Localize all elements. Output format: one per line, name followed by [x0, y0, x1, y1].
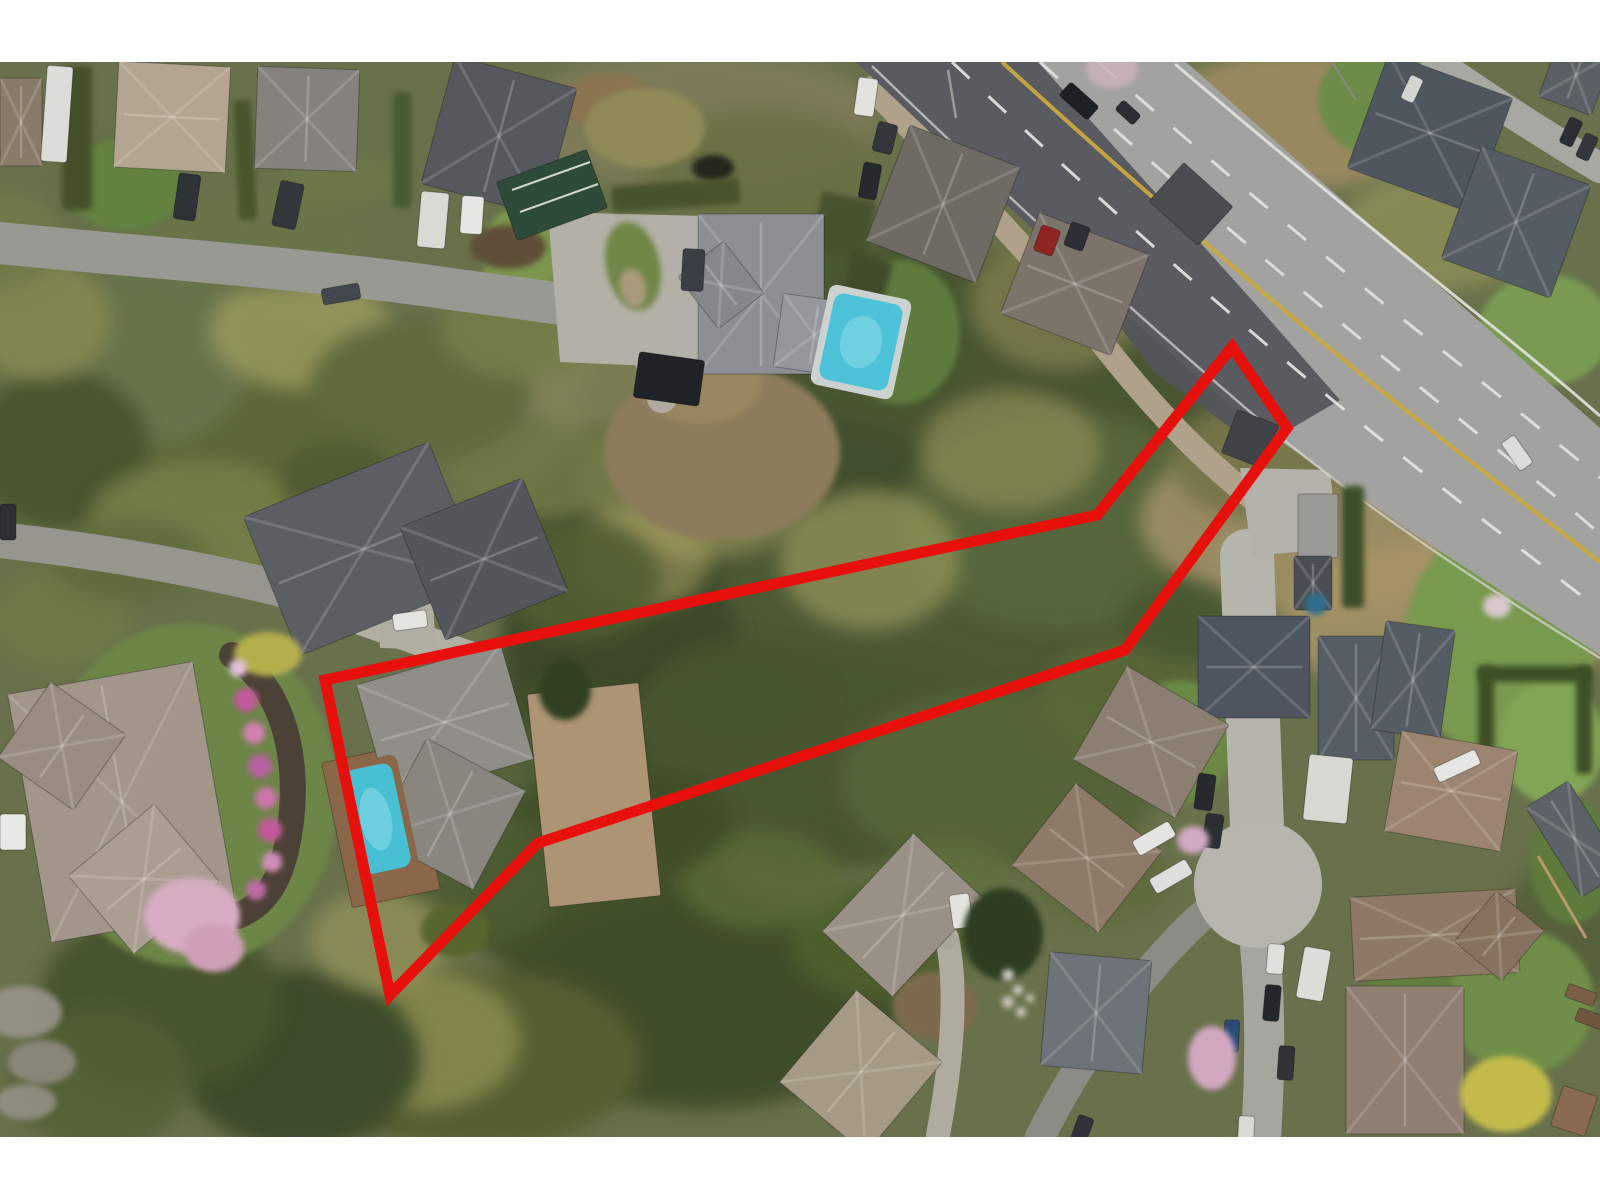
house-farright-1	[1371, 621, 1456, 740]
hedge	[1342, 486, 1364, 608]
house-topleft-1	[0, 78, 42, 166]
blossom-tree	[1188, 1026, 1236, 1090]
aerial-photo	[0, 0, 1600, 1200]
rhododendron	[262, 852, 282, 872]
rock	[1013, 985, 1023, 995]
house-farright-2	[1384, 731, 1518, 852]
rhododendron	[229, 659, 247, 677]
subject-deck-roof	[527, 683, 661, 908]
car-s1	[1266, 943, 1286, 974]
photo-content	[0, 34, 1600, 1154]
suv-s1	[1262, 984, 1281, 1021]
bldg-flat-roof	[1298, 494, 1338, 558]
pond	[692, 155, 734, 181]
bldg-flat-roof-roof	[1298, 494, 1338, 558]
house-topleft-3	[254, 66, 359, 171]
house-bm-3	[1040, 952, 1152, 1074]
hedge	[1576, 666, 1592, 774]
rock	[1002, 996, 1014, 1008]
hedge	[1478, 666, 1592, 682]
car-s2	[1277, 1045, 1295, 1080]
house-right-1	[1198, 616, 1310, 718]
street-south	[1260, 946, 1264, 1137]
rhododendron	[255, 787, 277, 809]
tree-mass	[650, 640, 830, 760]
house-topleft-2	[113, 61, 230, 173]
rock	[1026, 994, 1034, 1002]
subject-deck	[527, 683, 661, 908]
magnolia	[1177, 826, 1209, 854]
suv-estate	[681, 248, 705, 291]
cherry-blossom	[184, 924, 244, 972]
truck-black	[633, 352, 705, 407]
conifer	[539, 660, 591, 720]
yellow-tree	[1460, 1056, 1552, 1132]
blossom	[1483, 594, 1511, 618]
rock	[1016, 1007, 1026, 1017]
hedge	[393, 92, 411, 208]
tree-mass	[920, 390, 1100, 510]
rhododendron	[246, 880, 266, 900]
meadow	[585, 88, 705, 168]
box-truck	[417, 191, 450, 249]
trampoline	[1305, 593, 1327, 615]
conifer	[963, 888, 1043, 980]
photo-page	[0, 0, 1600, 1200]
motorhome	[1303, 754, 1354, 824]
car-left-2	[0, 504, 16, 540]
driveway-bm	[938, 938, 953, 1135]
house-br-2	[1346, 986, 1464, 1134]
rhododendron	[243, 722, 265, 744]
rhododendron	[248, 754, 272, 778]
rock	[1002, 969, 1014, 981]
car-left-1	[0, 814, 26, 850]
rhododendron	[258, 818, 282, 842]
car-white-1	[460, 195, 485, 234]
rock-outcrop	[8, 1040, 76, 1084]
rhododendron	[234, 688, 258, 712]
